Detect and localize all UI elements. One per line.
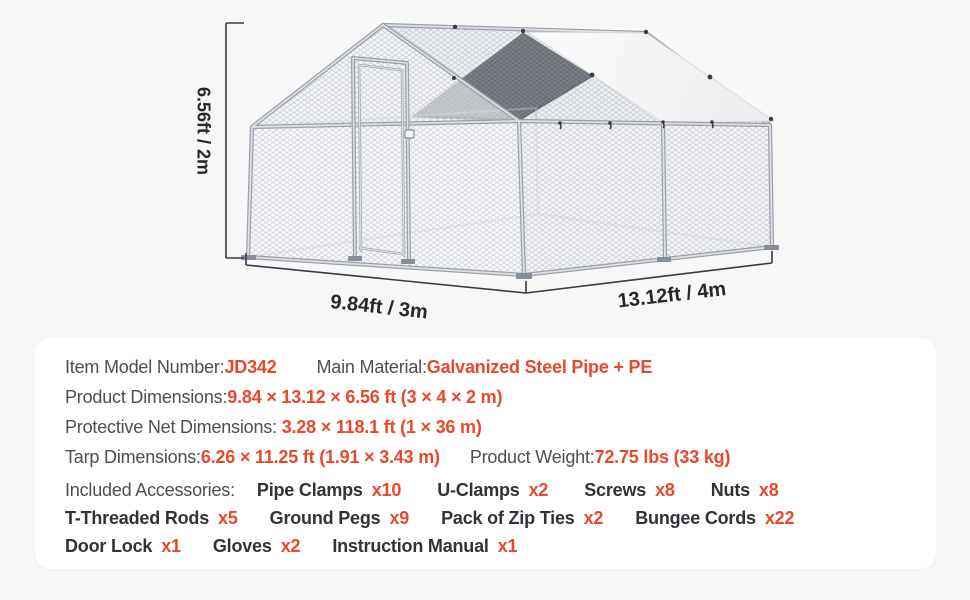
spec-row-model-material: Item Model Number:JD342 Main Material:Ga… [65, 352, 908, 382]
tarp-dimensions-value: 6.26 × 11.25 ft (1.91 × 3.43 m) [201, 447, 440, 468]
main-material: Main Material:Galvanized Steel Pipe + PE [317, 357, 653, 378]
accessory-t-threaded-rods: T-Threaded Rodsx5 [65, 508, 238, 529]
accessory-gloves: Glovesx2 [213, 536, 300, 557]
product-dimensions-label: Product Dimensions: [65, 387, 227, 408]
door-latch [405, 130, 414, 138]
accessory-ground-pegs: Ground Pegsx9 [270, 508, 409, 529]
product-weight: Product Weight:72.75 lbs (33 kg) [470, 447, 730, 468]
product-weight-value: 72.75 lbs (33 kg) [595, 447, 731, 468]
accessories-row-2: T-Threaded Rodsx5 Ground Pegsx9 Pack of … [65, 504, 908, 532]
accessory-pipe-clamps: Pipe Clampsx10 [257, 480, 401, 501]
accessories-row-1: Included Accessories: Pipe Clampsx10 U-C… [65, 476, 908, 504]
product-weight-label: Product Weight: [470, 447, 595, 468]
product-dimensions: Product Dimensions:9.84 × 13.12 × 6.56 f… [65, 387, 502, 408]
accessory-nuts: Nutsx8 [711, 480, 779, 501]
depth-dimension-label: 13.12ft / 4m [617, 278, 728, 312]
included-accessories-label: Included Accessories: [65, 480, 235, 501]
accessory-zip-ties: Pack of Zip Tiesx2 [441, 508, 603, 529]
width-dimension-label: 9.84ft / 3m [329, 291, 429, 324]
height-dimension-label: 6.56ft / 2m [193, 87, 213, 175]
item-model-number-value: JD342 [224, 357, 276, 378]
height-dimension: 6.56ft / 2m [193, 23, 244, 258]
accessory-screws: Screwsx8 [584, 480, 674, 501]
tarp-dimensions-label: Tarp Dimensions: [65, 447, 201, 468]
product-infographic: 6.56ft / 2m 9.84ft / 3m 13.12ft / 4m Ite… [0, 0, 970, 600]
accessories-row-3: Door Lockx1 Glovesx2 Instruction Manualx… [65, 532, 908, 560]
product-illustration: 6.56ft / 2m 9.84ft / 3m 13.12ft / 4m [0, 0, 970, 336]
spec-row-tarp-weight: Tarp Dimensions:6.26 × 11.25 ft (1.91 × … [65, 442, 908, 472]
accessory-instruction-manual: Instruction Manualx1 [332, 536, 517, 557]
accessory-u-clamps: U-Clampsx2 [437, 480, 548, 501]
main-material-label: Main Material: [317, 357, 427, 378]
accessory-door-lock: Door Lockx1 [65, 536, 181, 557]
spec-row-product-dimensions: Product Dimensions:9.84 × 13.12 × 6.56 f… [65, 382, 908, 412]
protective-net-dimensions: Protective Net Dimensions: 3.28 × 118.1 … [65, 417, 482, 438]
item-model-number-label: Item Model Number: [65, 357, 224, 378]
protective-net-dimensions-label: Protective Net Dimensions: [65, 417, 282, 438]
product-dimensions-value: 9.84 × 13.12 × 6.56 ft (3 × 4 × 2 m) [227, 387, 502, 408]
protective-net-dimensions-value: 3.28 × 118.1 ft (1 × 36 m) [282, 417, 482, 438]
accessory-bungee-cords: Bungee Cordsx22 [635, 508, 794, 529]
spec-card: Item Model Number:JD342 Main Material:Ga… [35, 338, 936, 569]
tarp-dimensions: Tarp Dimensions:6.26 × 11.25 ft (1.91 × … [65, 447, 440, 468]
spec-row-net-dimensions: Protective Net Dimensions: 3.28 × 118.1 … [65, 412, 908, 442]
main-material-value: Galvanized Steel Pipe + PE [427, 357, 652, 378]
item-model-number: Item Model Number:JD342 [65, 357, 277, 378]
